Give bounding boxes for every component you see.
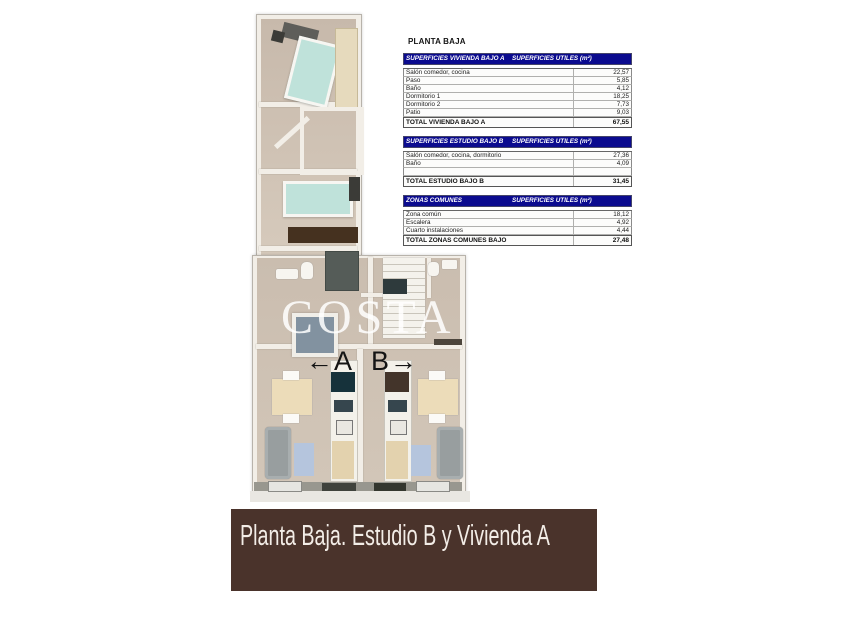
row-label: Dormitorio 1 <box>404 93 574 100</box>
total-label: TOTAL ESTUDIO BAJO B <box>404 177 574 186</box>
left-arrow-icon: ← <box>306 346 334 376</box>
row-label <box>404 168 574 175</box>
table-row: Salón comedor, cocina, dormitorio27,36 <box>403 152 632 160</box>
row-label: Zona común <box>404 211 574 218</box>
table-header: SUPERFICIES VIVIENDA BAJO A SUPERFICIES … <box>403 53 632 65</box>
chair <box>429 414 445 423</box>
row-value: 4,92 <box>574 219 631 226</box>
total-value: 27,48 <box>574 236 631 245</box>
bedroom2-bed <box>283 181 353 217</box>
table-row: Escalera4,92 <box>403 219 632 227</box>
table-row: Patio9,03 <box>403 109 632 117</box>
table-row: Baño4,09 <box>403 160 632 168</box>
sofa-a <box>265 427 291 479</box>
table-row: Dormitorio 27,73 <box>403 101 632 109</box>
entry-bay-walls <box>300 107 364 175</box>
cooktop <box>388 400 407 412</box>
window <box>268 481 302 492</box>
surface-tables: PLANTA BAJA SUPERFICIES VIVIENDA BAJO A … <box>403 37 632 254</box>
row-label: Baño <box>404 85 574 92</box>
shower <box>325 251 359 291</box>
row-value: 9,03 <box>574 109 631 116</box>
row-label: Baño <box>404 160 574 167</box>
bathroom-sink <box>276 269 298 279</box>
row-label: Dormitorio 2 <box>404 101 574 108</box>
table-body: Salón comedor, cocina, dormitorio27,36Ba… <box>403 151 632 176</box>
entry-door-a <box>322 483 356 491</box>
table-zonas-comunes: ZONAS COMUNES SUPERFICIES UTILES (m²) Zo… <box>403 195 632 246</box>
dresser <box>288 227 358 243</box>
sofa-b <box>437 427 463 479</box>
table-row: Salón comedor, cocina22,57 <box>403 69 632 77</box>
unit-a-label: ←A <box>306 346 353 377</box>
table-estudio-b: SUPERFICIES ESTUDIO BAJO B SUPERFICIES U… <box>403 136 632 187</box>
chair <box>429 371 445 380</box>
unit-b-label: B→ <box>371 346 418 377</box>
row-label: Patio <box>404 109 574 116</box>
rug <box>411 445 431 476</box>
row-value: 18,25 <box>574 93 631 100</box>
plan-base-platform <box>250 491 470 502</box>
row-label: Cuarto instalaciones <box>404 227 574 234</box>
wardrobe <box>335 28 358 108</box>
page-title: PLANTA BAJA <box>408 37 632 46</box>
chair <box>283 414 299 423</box>
row-value: 22,57 <box>574 69 631 76</box>
total-value: 67,55 <box>574 118 631 127</box>
watermark: COSTA <box>281 294 455 342</box>
window <box>416 481 450 492</box>
oven <box>390 420 407 435</box>
table-header-left: ZONAS COMUNES <box>406 196 512 206</box>
entry-door-b <box>374 483 406 491</box>
table-row: Dormitorio 118,25 <box>403 93 632 101</box>
table-header-right: SUPERFICIES UTILES (m²) <box>512 196 629 206</box>
rug <box>294 443 314 476</box>
table-row: Baño4,12 <box>403 85 632 93</box>
row-label: Salón comedor, cocina, dormitorio <box>404 152 574 159</box>
table-row <box>403 168 632 176</box>
dining-table-a <box>272 379 312 415</box>
toilet <box>301 262 313 279</box>
row-value <box>574 168 631 175</box>
kitchen-cabinet <box>386 441 408 479</box>
caption-banner: Planta Baja. Estudio B y Vivienda A <box>231 509 597 591</box>
caption-text: Planta Baja. Estudio B y Vivienda A <box>240 520 550 553</box>
right-arrow-icon: → <box>390 346 418 376</box>
table-total-row: TOTAL ZONAS COMUNES BAJO 27,48 <box>403 235 632 246</box>
table-row: Cuarto instalaciones4,44 <box>403 227 632 235</box>
table-header-left: SUPERFICIES VIVIENDA BAJO A <box>406 54 512 64</box>
row-value: 27,36 <box>574 152 631 159</box>
table-row: Paso5,85 <box>403 77 632 85</box>
total-label: TOTAL VIVIENDA BAJO A <box>404 118 574 127</box>
kitchen-cabinet <box>332 441 354 479</box>
table-vivienda-a: SUPERFICIES VIVIENDA BAJO A SUPERFICIES … <box>403 53 632 128</box>
row-value: 4,09 <box>574 160 631 167</box>
bedside-table <box>349 177 360 201</box>
table-total-row: TOTAL VIVIENDA BAJO A 67,55 <box>403 117 632 128</box>
table-header-right: SUPERFICIES UTILES (m²) <box>512 54 629 64</box>
row-value: 4,12 <box>574 85 631 92</box>
row-label: Salón comedor, cocina <box>404 69 574 76</box>
table-header-left: SUPERFICIES ESTUDIO BAJO B <box>406 137 512 147</box>
table-total-row: TOTAL ESTUDIO BAJO B 31,45 <box>403 176 632 187</box>
row-value: 4,44 <box>574 227 631 234</box>
bathroom-sink <box>442 260 457 269</box>
table-header-right: SUPERFICIES UTILES (m²) <box>512 137 629 147</box>
row-value: 7,73 <box>574 101 631 108</box>
chair <box>283 371 299 380</box>
toilet <box>428 262 439 276</box>
table-header: SUPERFICIES ESTUDIO BAJO B SUPERFICIES U… <box>403 136 632 148</box>
table-header: ZONAS COMUNES SUPERFICIES UTILES (m²) <box>403 195 632 207</box>
total-label: TOTAL ZONAS COMUNES BAJO <box>404 236 574 245</box>
cooktop <box>334 400 353 412</box>
table-body: Salón comedor, cocina22,57Paso5,85Baño4,… <box>403 68 632 117</box>
row-label: Escalera <box>404 219 574 226</box>
table-body: Zona común18,12Escalera4,92Cuarto instal… <box>403 210 632 235</box>
table-row: Zona común18,12 <box>403 211 632 219</box>
dining-table-b <box>418 379 458 415</box>
plan-sheet: ←A B→ COSTA PLANTA BAJA SUPERFICIES VIVI… <box>0 0 859 638</box>
total-value: 31,45 <box>574 177 631 186</box>
oven <box>336 420 353 435</box>
row-label: Paso <box>404 77 574 84</box>
row-value: 5,85 <box>574 77 631 84</box>
row-value: 18,12 <box>574 211 631 218</box>
